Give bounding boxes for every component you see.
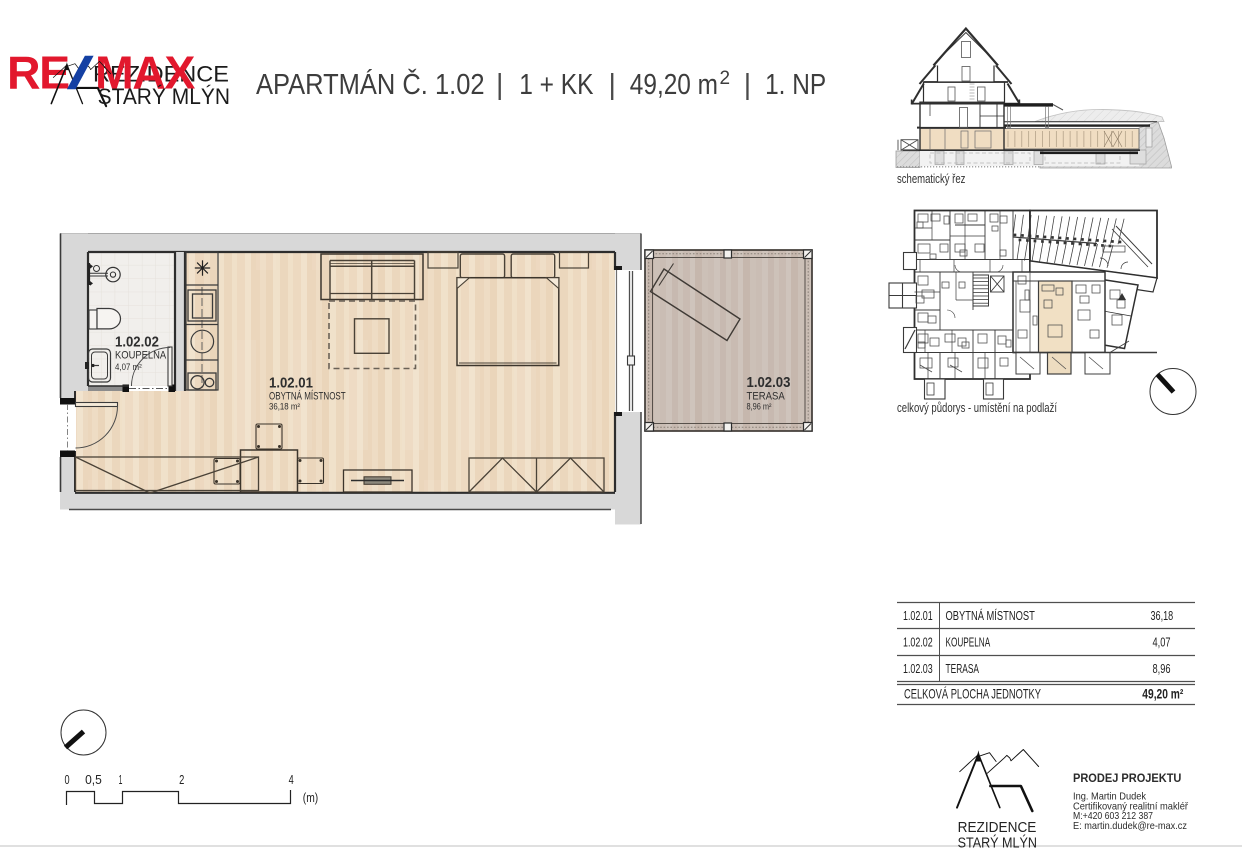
svg-text:1.02.01: 1.02.01 [269,376,313,392]
svg-text:OBYTNÁ MÍSTNOST: OBYTNÁ MÍSTNOST [946,608,1035,623]
svg-text:KOUPELNA: KOUPELNA [946,635,991,650]
svg-text:|: | [609,69,616,101]
svg-text:49,20 m: 49,20 m [630,69,718,101]
svg-text:(m): (m) [303,790,318,805]
svg-text:1. NP: 1. NP [765,69,826,101]
svg-text:1.02.03: 1.02.03 [903,661,933,676]
svg-text:schematický řez: schematický řez [897,172,965,186]
svg-text:36,18 m²: 36,18 m² [269,402,300,412]
svg-text:PRODEJ PROJEKTU: PRODEJ PROJEKTU [1073,771,1182,785]
svg-text:celkový půdorys - umístění na: celkový půdorys - umístění na podlaží [897,401,1057,415]
svg-text:2: 2 [179,772,184,787]
svg-text:1: 1 [119,772,123,787]
svg-text:4,07 m²: 4,07 m² [115,362,142,372]
svg-text:4: 4 [289,772,294,787]
svg-text:1 + KK: 1 + KK [519,69,593,101]
svg-text:|: | [744,69,751,101]
svg-text:1.02.03: 1.02.03 [747,375,791,391]
svg-text:0: 0 [65,772,70,787]
svg-text:1.02.02: 1.02.02 [903,635,933,650]
svg-text:KOUPELNA: KOUPELNA [115,350,167,362]
svg-text:STARÝ MLÝN: STARÝ MLÝN [98,84,230,109]
svg-text:|: | [496,69,503,101]
svg-text:8,96: 8,96 [1153,661,1171,676]
svg-text:1.02.01: 1.02.01 [903,608,933,623]
svg-text:REZIDENCE: REZIDENCE [958,820,1037,836]
svg-text:APARTMÁN Č. 1.02: APARTMÁN Č. 1.02 [256,69,485,101]
svg-text:E: martin.dudek@re-max.cz: E: martin.dudek@re-max.cz [1073,821,1187,832]
svg-text:4,07: 4,07 [1153,635,1171,650]
svg-text:8,96 m²: 8,96 m² [747,402,772,412]
svg-text:2: 2 [720,68,731,89]
svg-text:RE: RE [7,47,69,99]
svg-text:0,5: 0,5 [85,772,102,787]
svg-text:CELKOVÁ PLOCHA JEDNOTKY: CELKOVÁ PLOCHA JEDNOTKY [904,687,1041,702]
svg-text:TERASA: TERASA [946,661,980,676]
svg-text:49,20 m²: 49,20 m² [1142,687,1183,702]
svg-text:STARÝ MLÝN: STARÝ MLÝN [958,835,1037,852]
svg-text:36,18: 36,18 [1151,608,1174,623]
svg-text:1.02.02: 1.02.02 [115,335,159,351]
